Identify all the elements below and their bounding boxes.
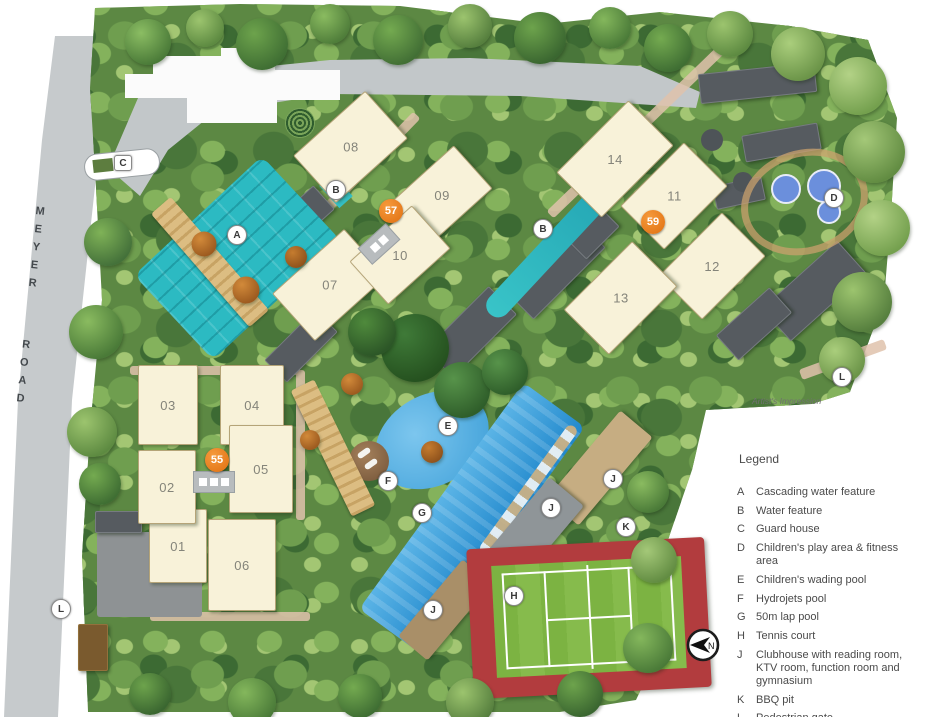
legend-item-e: EChildren's wading pool [737, 574, 937, 587]
legend-key: A [737, 486, 756, 499]
tree-icon [79, 463, 121, 505]
legend-item-k: KBBQ pit [737, 694, 937, 707]
tree-icon [557, 671, 603, 717]
guard-house-roof [92, 158, 113, 173]
marker-water-feature: B [326, 180, 346, 200]
marker-label: H [510, 591, 517, 602]
tree-icon [854, 200, 910, 256]
marker-hydrojets-pool: F [378, 471, 398, 491]
legend-key: E [737, 574, 756, 587]
tree-icon [421, 441, 443, 463]
marker-tennis-court: H [504, 586, 524, 606]
artists-impression-caption: Artist's Impression [752, 396, 821, 406]
tree-icon [631, 537, 677, 583]
legend-item-a: ACascading water feature [737, 486, 937, 499]
site-plan: 01 02 03 04 05 06 07 08 09 10 11 12 13 1… [0, 0, 943, 717]
legend-item-c: CGuard house [737, 523, 937, 536]
address-badge-55: 55 [205, 448, 229, 472]
gate-pavilion [78, 624, 108, 671]
marker-guard-house: C [114, 155, 132, 171]
tree-icon [589, 7, 631, 49]
marker-childrens-wading-pool: E [438, 416, 458, 436]
building-02: 02 [138, 450, 196, 524]
marker-clubhouse: J [603, 469, 623, 489]
legend-label: Children's play area & fitness area [756, 542, 912, 568]
marker-label: L [58, 604, 64, 615]
tree-icon [373, 15, 423, 65]
tree-icon [707, 11, 753, 57]
legend-key: C [737, 523, 756, 536]
legend-label: Water feature [756, 505, 912, 518]
legend-key: B [737, 505, 756, 518]
building-14-label: 14 [607, 152, 622, 167]
marker-label: C [119, 158, 126, 169]
legend-label: Cascading water feature [756, 486, 912, 499]
marker-label: B [539, 224, 546, 235]
childrens-play-area [771, 174, 801, 204]
tree-icon [233, 277, 260, 304]
legend-item-l: LPedestrian gate [737, 712, 937, 717]
legend-label: 50m lap pool [756, 611, 912, 624]
building-09-label: 09 [434, 188, 449, 203]
building-06: 06 [208, 519, 276, 611]
marker-label: A [233, 230, 240, 241]
legend-key: D [737, 542, 756, 568]
compass-n-label: N [708, 641, 715, 651]
legend-key: K [737, 694, 756, 707]
marker-pedestrian-gate: L [51, 599, 71, 619]
legend-label: Children's wading pool [756, 574, 912, 587]
drop-off-porch [193, 471, 235, 493]
marker-clubhouse: J [423, 600, 443, 620]
marker-clubhouse: J [541, 498, 561, 518]
badge-label: 55 [211, 454, 223, 466]
tree-icon [832, 272, 892, 332]
marker-pedestrian-gate: L [832, 367, 852, 387]
marker-label: J [430, 605, 436, 616]
legend-key: J [737, 649, 756, 689]
tree-icon [186, 9, 224, 47]
legend-key: F [737, 593, 756, 606]
tree-icon [129, 673, 171, 715]
tree-icon [627, 471, 669, 513]
tree-icon [125, 19, 171, 65]
legend-item-d: DChildren's play area & fitness area [737, 542, 937, 568]
marker-label: G [418, 508, 426, 519]
tree-icon [285, 246, 307, 268]
legend-key: L [737, 712, 756, 717]
tree-icon [623, 623, 673, 673]
tree-icon [348, 308, 396, 356]
marker-label: F [385, 476, 391, 487]
building-06-label: 06 [234, 558, 249, 573]
marker-label: J [548, 503, 554, 514]
marker-label: K [622, 522, 629, 533]
marker-label: L [839, 372, 845, 383]
low-rise-roof [95, 511, 142, 533]
tree-icon [482, 349, 528, 395]
legend-panel: Legend ACascading water feature BWater f… [737, 452, 937, 717]
tree-icon [341, 373, 363, 395]
tree-icon [338, 674, 382, 717]
building-10-label: 10 [392, 248, 407, 263]
marker-label: D [830, 193, 837, 204]
building-12-label: 12 [704, 259, 719, 274]
tree-icon [192, 232, 217, 257]
marker-cascading-water-feature: A [227, 225, 247, 245]
tree-icon [448, 4, 492, 48]
building-01-label: 01 [170, 539, 185, 554]
tree-icon [300, 430, 320, 450]
marker-childrens-play-area: D [824, 188, 844, 208]
legend-key: H [737, 630, 756, 643]
tree-icon [310, 4, 350, 44]
north-compass-icon: N [683, 625, 723, 670]
address-badge-57: 57 [379, 199, 403, 223]
tree-icon [67, 407, 117, 457]
building-02-label: 02 [159, 480, 174, 495]
legend-label: Clubhouse with reading room, KTV room, f… [756, 649, 912, 689]
tree-icon [69, 305, 123, 359]
legend-label: Tennis court [756, 630, 912, 643]
tree-icon [843, 121, 905, 183]
tree-icon [771, 27, 825, 81]
legend-label: Hydrojets pool [756, 593, 912, 606]
legend-item-g: G50m lap pool [737, 611, 937, 624]
lounger-icon [364, 458, 379, 471]
legend-item-j: JClubhouse with reading room, KTV room, … [737, 649, 937, 689]
badge-label: 59 [647, 216, 659, 228]
tree-icon [829, 57, 887, 115]
building-08-label: 08 [343, 140, 358, 155]
round-pavilion [701, 129, 723, 151]
tree-icon [84, 218, 132, 266]
tree-icon [514, 12, 566, 64]
legend-label: Pedestrian gate [756, 712, 912, 717]
building-04-label: 04 [244, 398, 259, 413]
building-07-label: 07 [322, 278, 337, 293]
building-03: 03 [138, 365, 198, 445]
building-11-label: 11 [667, 189, 682, 204]
marker-lap-pool: G [412, 503, 432, 523]
address-badge-59: 59 [641, 210, 665, 234]
legend-item-b: BWater feature [737, 505, 937, 518]
tree-icon [236, 18, 288, 70]
marker-water-feature: B [533, 219, 553, 239]
building-05: 05 [229, 425, 293, 513]
legend-item-h: HTennis court [737, 630, 937, 643]
lounger-icon [357, 447, 372, 460]
legend-key: G [737, 611, 756, 624]
marker-label: E [445, 421, 452, 432]
building-13-label: 13 [613, 291, 628, 306]
marker-label: B [332, 185, 339, 196]
spiral-garden-feature [285, 108, 315, 138]
building-03-label: 03 [160, 398, 175, 413]
marker-bbq-pit: K [616, 517, 636, 537]
badge-label: 57 [385, 205, 397, 217]
legend-label: BBQ pit [756, 694, 912, 707]
legend-title: Legend [739, 452, 937, 466]
building-05-label: 05 [253, 462, 268, 477]
legend-item-f: FHydrojets pool [737, 593, 937, 606]
legend-label: Guard house [756, 523, 912, 536]
marker-label: J [610, 474, 616, 485]
tree-icon [644, 24, 692, 72]
